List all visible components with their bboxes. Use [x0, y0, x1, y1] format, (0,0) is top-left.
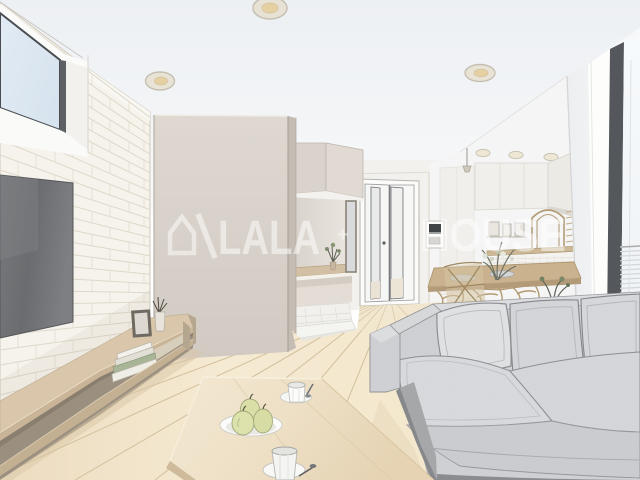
svg-text:LALA: LALA — [218, 212, 320, 265]
svg-text:HOUSE: HOUSE — [420, 209, 566, 261]
svg-text:+: + — [337, 224, 349, 246]
